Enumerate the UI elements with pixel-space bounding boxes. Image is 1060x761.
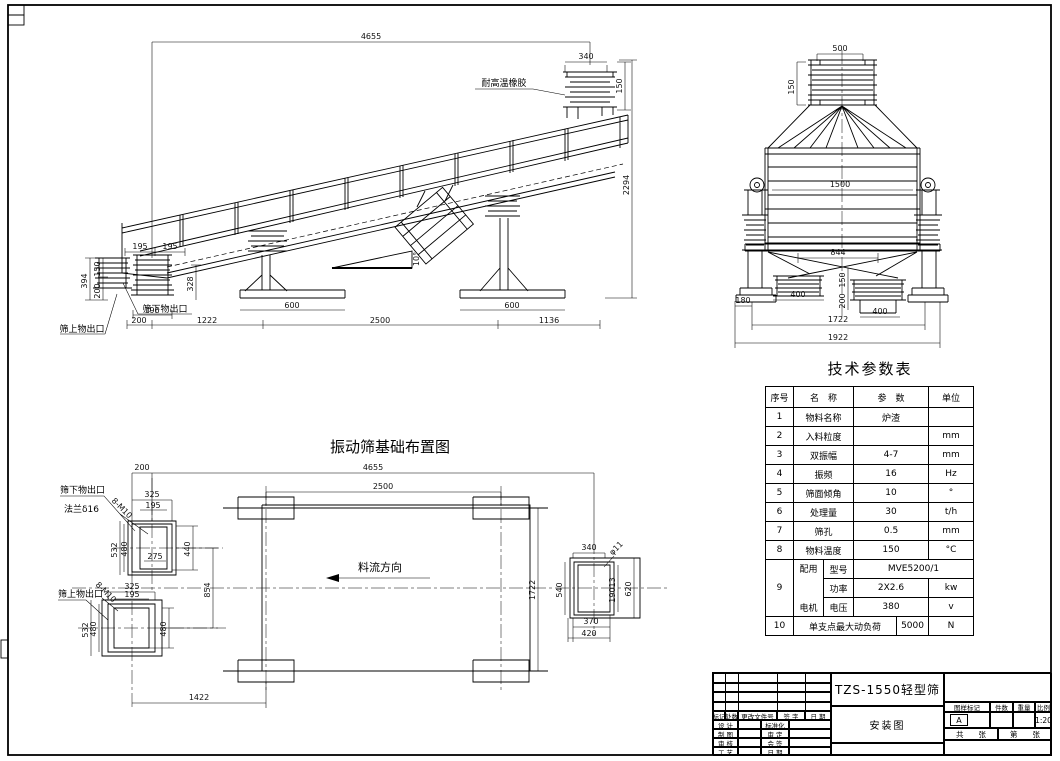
cell-value: 150 xyxy=(854,541,929,560)
col-header-unit: 单位 xyxy=(929,387,974,408)
dim-label: 1500 xyxy=(830,180,850,189)
role-draft: 制 图 xyxy=(713,729,738,738)
cell-unit: kw xyxy=(929,579,974,598)
role-check: 审 核 xyxy=(713,738,738,747)
under-outlet-label: 筛下物出口 xyxy=(60,484,105,496)
revision-row xyxy=(713,673,831,683)
dim-label: 150 xyxy=(787,79,796,94)
rev-col-mark: 标记 xyxy=(713,711,725,720)
cell-no: 9 xyxy=(766,560,794,617)
side-view-linework xyxy=(93,72,628,298)
dim-label: 480 xyxy=(159,621,168,636)
cell-name: 筛孔 xyxy=(794,522,854,541)
cell-name: 物料温度 xyxy=(794,541,854,560)
cell-unit: mm xyxy=(929,446,974,465)
role-design: 设 计 xyxy=(713,720,738,729)
cell-no: 2 xyxy=(766,427,794,446)
dim-label: 275 xyxy=(147,552,162,561)
cell-name: 振频 xyxy=(794,465,854,484)
dim-label: 200 xyxy=(131,316,146,325)
cell-no: 1 xyxy=(766,408,794,427)
drawing-sheet: 4655 340 150 2294 195 195 394 150 200 32… xyxy=(0,0,1060,761)
dim-label: 2500 xyxy=(370,316,390,325)
cell-no: 8 xyxy=(766,541,794,560)
dim-label: 844 xyxy=(830,248,845,257)
rev-col-file: 更改文件号 xyxy=(738,711,777,720)
dim-label: 400 xyxy=(790,290,805,299)
cell-unit: N xyxy=(929,617,974,636)
plan-view-title: 振动筛基础布置图 xyxy=(330,438,450,456)
technical-params-table: 技术参数表 序号 名 称 参 数 单位 1物料名称炉渣 2入料粒度mm 3双振幅… xyxy=(765,358,975,636)
cell-no: 5 xyxy=(766,484,794,503)
dim-label: 2500 xyxy=(373,482,393,491)
dim-label: 150 xyxy=(838,272,847,287)
dim-label: 480 xyxy=(120,541,129,556)
cell-motor-group: 配用 电机 xyxy=(794,560,824,617)
cell-unit: mm xyxy=(929,427,974,446)
role-countersign: 会 签 xyxy=(761,738,789,747)
cell-name: 双振幅 xyxy=(794,446,854,465)
cell-unit: v xyxy=(929,598,974,617)
flange-label: 法兰δ16 xyxy=(64,503,99,515)
revision-row xyxy=(713,702,831,712)
params-table-grid: 序号 名 称 参 数 单位 1物料名称炉渣 2入料粒度mm 3双振幅4-7mm … xyxy=(765,386,974,636)
cell-name: 单支点最大动负荷 xyxy=(794,617,897,636)
dim-label: 1222 xyxy=(197,316,217,325)
cell-unit xyxy=(929,408,974,427)
under-outlet-label: 筛下物出口 xyxy=(142,303,187,315)
dim-label: 1922 xyxy=(828,333,848,342)
weight-value xyxy=(1013,712,1035,728)
cell-name: 筛面倾角 xyxy=(794,484,854,503)
cell-value: 5000 xyxy=(897,617,929,636)
dim-label: 328 xyxy=(186,276,195,291)
col-header-name: 名 称 xyxy=(794,387,854,408)
dim-label: 200 xyxy=(134,463,149,472)
doc-type: 安装图 xyxy=(831,706,944,743)
dim-label: 1422 xyxy=(189,693,209,702)
dim-label: 500 xyxy=(832,44,847,53)
product-name: TZS-1550轻型筛 xyxy=(831,673,944,706)
table-row: 1物料名称炉渣 xyxy=(766,408,974,427)
role-process: 工 艺 xyxy=(713,747,738,756)
dim-label: 200 xyxy=(93,283,102,298)
hole-spec-label: φ11 xyxy=(608,540,625,557)
dim-label: 150 xyxy=(93,261,102,276)
motor-group-bottom: 电机 xyxy=(794,601,823,614)
side-elevation-view: 4655 340 150 2294 195 195 394 150 200 32… xyxy=(55,15,660,355)
corner-zone-mark xyxy=(8,15,24,25)
dim-label: 400 xyxy=(872,307,887,316)
dim-label: 532 xyxy=(110,542,119,557)
dim-label: 420 xyxy=(581,629,596,638)
cell-no: 4 xyxy=(766,465,794,484)
table-row: 6处理量30t/h xyxy=(766,503,974,522)
flow-arrow xyxy=(326,574,339,582)
table-row: 7筛孔0.5mm xyxy=(766,522,974,541)
qty-value xyxy=(990,712,1013,728)
cell-name: 物料名称 xyxy=(794,408,854,427)
table-row: 3双振幅4-7mm xyxy=(766,446,974,465)
mark-header: 图样标记 xyxy=(944,702,990,712)
dim-label: 325 xyxy=(144,490,159,499)
col-header-no: 序号 xyxy=(766,387,794,408)
dim-label: 600 xyxy=(504,301,519,310)
dim-label: 195 xyxy=(124,590,139,599)
flow-direction-label: 料流方向 xyxy=(358,560,402,574)
rev-col-date: 日 期 xyxy=(805,711,831,720)
cell-no: 6 xyxy=(766,503,794,522)
col-header-value: 参 数 xyxy=(854,387,929,408)
dim-label: 4655 xyxy=(363,463,383,472)
dim-label: 2294 xyxy=(622,175,631,195)
dim-label: 195 xyxy=(145,501,160,510)
cell-unit: Hz xyxy=(929,465,974,484)
foundation-plan-view: 振动筛基础布置图 200 4655 2500 1722 854 1422 325… xyxy=(58,428,698,718)
dim-label: 1136 xyxy=(539,316,559,325)
revision-row xyxy=(713,683,831,693)
cell-label: 型号 xyxy=(824,560,854,579)
cell-name: 处理量 xyxy=(794,503,854,522)
rev-col-count: 处数 xyxy=(725,711,738,720)
cell-no: 10 xyxy=(766,617,794,636)
cell-value: 10 xyxy=(854,484,929,503)
title-block: 标记 处数 更改文件号 签 字 日 期 设 计 制 图 审 核 工 艺 标准化 … xyxy=(712,672,1051,755)
sheet-number: 第 张 xyxy=(998,728,1052,740)
cell-label: 功率 xyxy=(824,579,854,598)
dim-label: 1722 xyxy=(528,580,537,600)
cell-unit: mm xyxy=(929,522,974,541)
dim-label: 340 xyxy=(578,52,593,61)
dim-label: 150 xyxy=(615,78,624,93)
cell-unit: °C xyxy=(929,541,974,560)
table-row: 10 单支点最大动负荷 5000 N xyxy=(766,617,974,636)
rubber-label: 耐高温橡胶 xyxy=(481,77,526,89)
cell-value: 0.5 xyxy=(854,522,929,541)
dim-label: 480 xyxy=(89,621,98,636)
dim-label: 1722 xyxy=(828,315,848,324)
dim-label: 180 xyxy=(735,296,750,305)
weight-header: 重量 xyxy=(1013,702,1035,712)
company-cell xyxy=(944,673,1052,702)
dim-label: 620 xyxy=(624,581,633,596)
scale-header: 比例 xyxy=(1035,702,1052,712)
motor-group-top: 配用 xyxy=(794,562,823,575)
cell-unit: ° xyxy=(929,484,974,503)
cell-value: 4-7 xyxy=(854,446,929,465)
dim-label: 394 xyxy=(80,273,89,288)
cell-value: 2X2.6 xyxy=(854,579,929,598)
dim-label: 854 xyxy=(203,582,212,597)
table-row: 8物料温度150°C xyxy=(766,541,974,560)
cell-value: 炉渣 xyxy=(854,408,929,427)
over-outlet-label: 筛上物出口 xyxy=(59,323,104,335)
over-outlet-label: 筛上物出口 xyxy=(58,588,103,600)
slope-triangle xyxy=(332,251,412,268)
dim-label: 600 xyxy=(284,301,299,310)
end-elevation-view: 500 150 1500 844 150 200 400 400 180 172… xyxy=(700,40,1000,355)
plan-view-linework xyxy=(72,478,668,708)
dim-label: 200 xyxy=(838,293,847,308)
dim-label: 195 xyxy=(132,242,147,251)
cell-label: 电压 xyxy=(824,598,854,617)
role-date: 日 期 xyxy=(761,747,789,756)
role-standard: 标准化 xyxy=(761,720,789,729)
cell-unit: t/h xyxy=(929,503,974,522)
cell-value: 16 xyxy=(854,465,929,484)
role-approve: 审 定 xyxy=(761,729,789,738)
cell-no: 3 xyxy=(766,446,794,465)
params-table-title: 技术参数表 xyxy=(765,358,975,379)
dim-label: 19013 xyxy=(608,577,617,602)
total-sheets: 共 张 xyxy=(944,728,998,740)
qty-header: 件数 xyxy=(990,702,1013,712)
cell-name: 入料粒度 xyxy=(794,427,854,446)
scale-value: 1:20 xyxy=(1035,712,1052,728)
dim-label: 340 xyxy=(581,543,596,552)
table-row: 2入料粒度mm xyxy=(766,427,974,446)
cell-value: 380 xyxy=(854,598,929,617)
corner-zone-mark xyxy=(8,5,24,15)
cell-value: 30 xyxy=(854,503,929,522)
bolt-spec-label: 8-M10 xyxy=(110,496,134,520)
revision-row xyxy=(713,692,831,702)
rev-col-sign: 签 字 xyxy=(777,711,805,720)
table-row-motor: 9 配用 电机 型号 MVE5200/1 xyxy=(766,560,974,579)
dim-label: 540 xyxy=(555,582,564,597)
cell-value xyxy=(854,427,929,446)
dim-label: 370 xyxy=(583,617,598,626)
slope-label: 10° xyxy=(412,252,421,266)
table-row: 5筛面倾角10° xyxy=(766,484,974,503)
cell-value: MVE5200/1 xyxy=(854,560,974,579)
table-row: 4振频16Hz xyxy=(766,465,974,484)
dim-label: 195 xyxy=(162,242,177,251)
mark-value: A xyxy=(950,714,968,726)
dim-label: 440 xyxy=(183,541,192,556)
cell-no: 7 xyxy=(766,522,794,541)
edge-zone-mark xyxy=(1,640,8,658)
dim-label: 4655 xyxy=(361,32,381,41)
